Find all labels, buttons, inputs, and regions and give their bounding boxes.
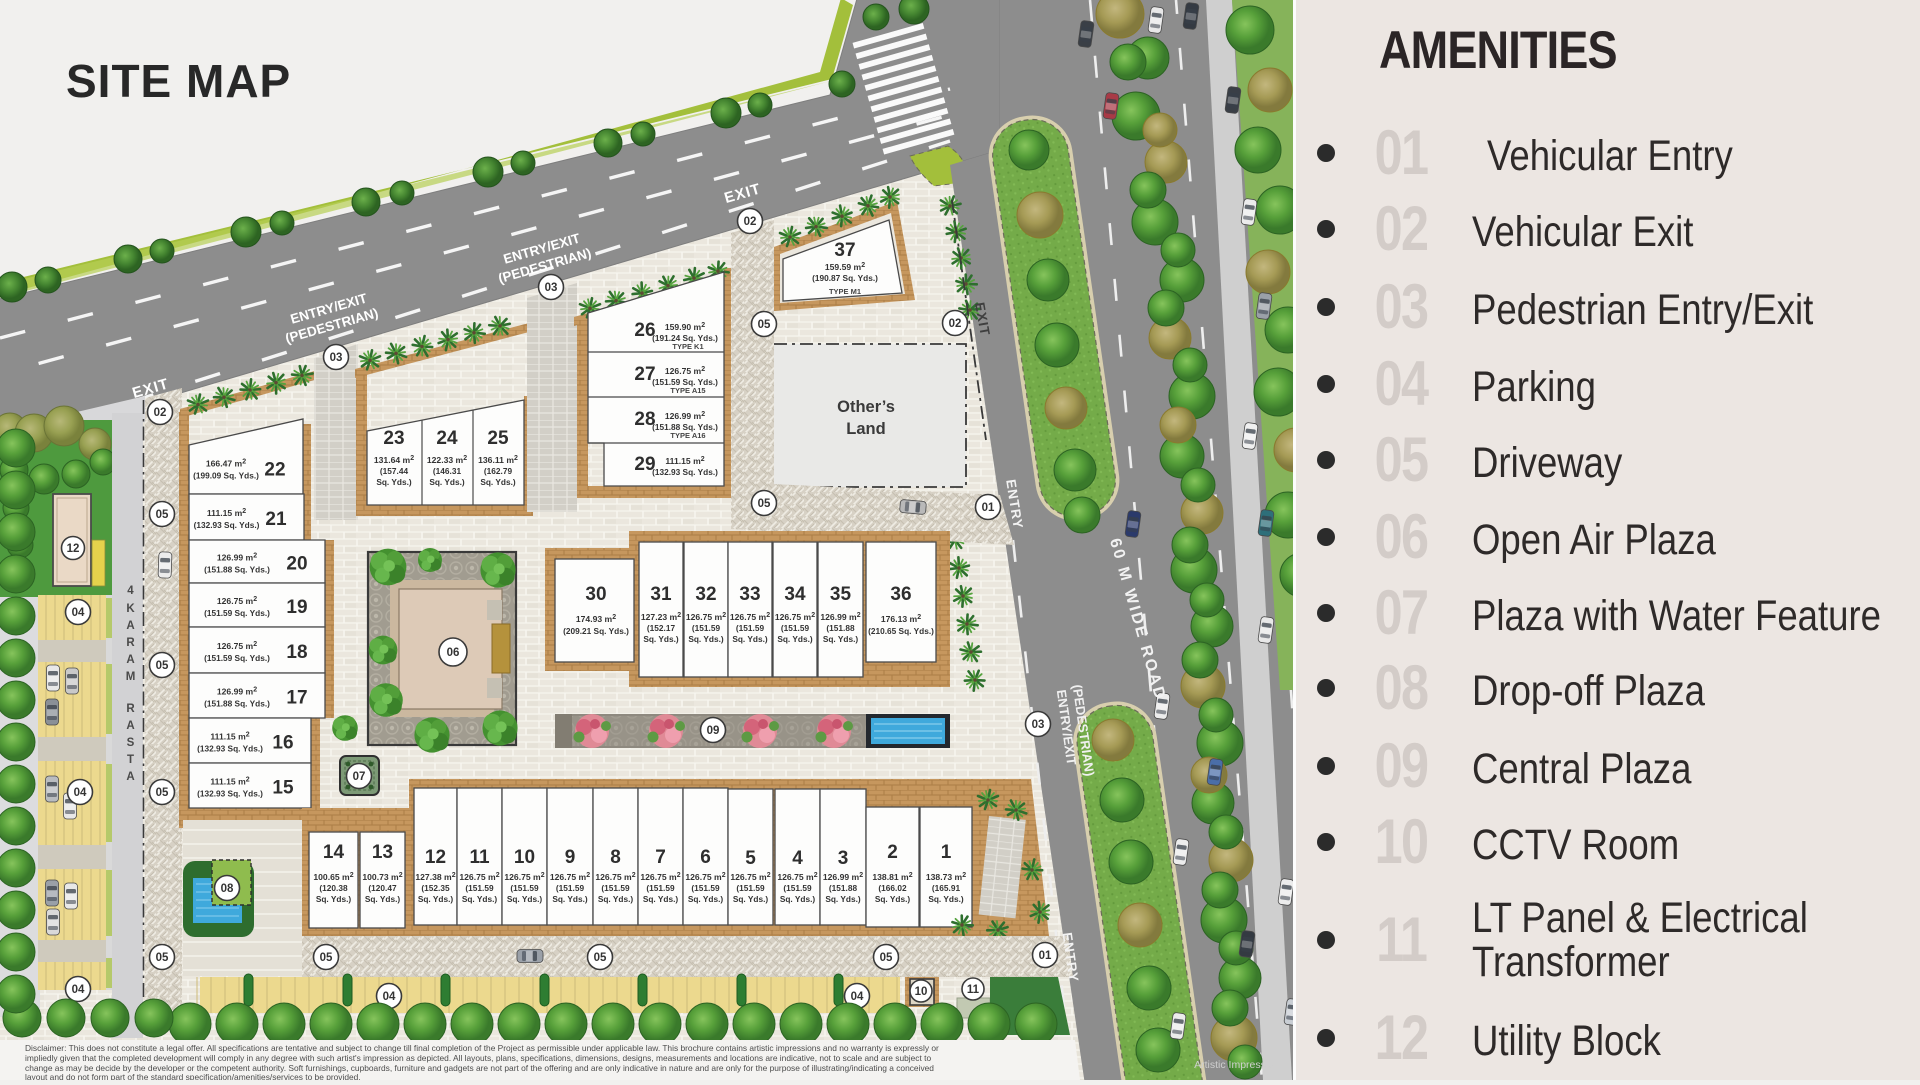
svg-text:Other’s: Other’s bbox=[837, 398, 895, 416]
svg-text:TYPE A15: TYPE A15 bbox=[670, 386, 705, 395]
svg-text:Sq. Yds.): Sq. Yds.) bbox=[732, 634, 768, 644]
svg-text:25: 25 bbox=[487, 428, 509, 449]
svg-text:(132.93 Sq. Yds.): (132.93 Sq. Yds.) bbox=[197, 789, 263, 799]
svg-text:A: A bbox=[126, 771, 134, 783]
svg-text:22: 22 bbox=[264, 460, 285, 481]
svg-text:(151.88: (151.88 bbox=[826, 623, 855, 633]
svg-text:(132.93 Sq. Yds.): (132.93 Sq. Yds.) bbox=[194, 520, 260, 530]
svg-text:05: 05 bbox=[156, 952, 169, 964]
svg-text:111.15 m2: 111.15 m2 bbox=[210, 776, 249, 787]
svg-text:(151.59: (151.59 bbox=[736, 883, 765, 893]
svg-text:(151.59: (151.59 bbox=[646, 883, 675, 893]
svg-text:04: 04 bbox=[74, 787, 87, 799]
svg-text:30: 30 bbox=[585, 584, 606, 605]
svg-text:S: S bbox=[127, 737, 135, 749]
svg-text:05: 05 bbox=[156, 660, 169, 672]
svg-text:TYPE K1: TYPE K1 bbox=[672, 342, 703, 351]
svg-text:Artistic Impression: Artistic Impression bbox=[1194, 1059, 1280, 1071]
svg-text:Sq. Yds.): Sq. Yds.) bbox=[688, 894, 724, 904]
svg-text:111.15 m2: 111.15 m2 bbox=[665, 456, 704, 467]
svg-text:Sq. Yds.): Sq. Yds.) bbox=[643, 894, 679, 904]
svg-text:Sq. Yds.): Sq. Yds.) bbox=[418, 894, 454, 904]
svg-text:(151.59: (151.59 bbox=[601, 883, 630, 893]
svg-text:(162.79: (162.79 bbox=[484, 466, 513, 476]
svg-text:138.81 m2: 138.81 m2 bbox=[872, 872, 912, 883]
svg-text:32: 32 bbox=[695, 584, 716, 605]
svg-text:(152.35: (152.35 bbox=[421, 883, 450, 893]
svg-text:20: 20 bbox=[286, 554, 307, 575]
svg-text:37: 37 bbox=[834, 240, 855, 261]
svg-text:6: 6 bbox=[700, 847, 711, 868]
svg-text:05: 05 bbox=[880, 952, 893, 964]
svg-text:138.73 m2: 138.73 m2 bbox=[926, 872, 966, 883]
svg-text:Sq. Yds.): Sq. Yds.) bbox=[643, 634, 679, 644]
svg-text:05: 05 bbox=[320, 952, 333, 964]
svg-text:13: 13 bbox=[372, 842, 393, 863]
svg-text:A: A bbox=[126, 720, 134, 732]
svg-text:(190.87 Sq. Yds.): (190.87 Sq. Yds.) bbox=[812, 273, 878, 283]
svg-text:126.75 m2: 126.75 m2 bbox=[665, 366, 705, 377]
svg-text:(151.59: (151.59 bbox=[691, 883, 720, 893]
svg-text:M: M bbox=[126, 671, 136, 683]
svg-text:(132.93 Sq. Yds.): (132.93 Sq. Yds.) bbox=[652, 467, 718, 477]
svg-text:A: A bbox=[126, 654, 134, 666]
svg-text:31: 31 bbox=[650, 584, 672, 605]
svg-text:layout and do not form part of: layout and do not form part of the stand… bbox=[25, 1072, 361, 1080]
svg-text:02: 02 bbox=[154, 407, 167, 419]
svg-text:Sq. Yds.): Sq. Yds.) bbox=[507, 894, 543, 904]
svg-text:(151.59 Sq. Yds.): (151.59 Sq. Yds.) bbox=[204, 653, 270, 663]
svg-text:12: 12 bbox=[67, 543, 80, 555]
svg-text:126.99 m2: 126.99 m2 bbox=[820, 612, 860, 623]
svg-text:TYPE M1: TYPE M1 bbox=[829, 287, 861, 296]
svg-text:Land: Land bbox=[846, 420, 885, 438]
svg-text:(166.02: (166.02 bbox=[878, 883, 907, 893]
svg-text:33: 33 bbox=[739, 584, 760, 605]
svg-text:126.99 m2: 126.99 m2 bbox=[217, 686, 257, 697]
svg-text:03: 03 bbox=[545, 282, 558, 294]
svg-text:126.75 m2: 126.75 m2 bbox=[595, 872, 635, 883]
svg-text:21: 21 bbox=[265, 509, 287, 530]
svg-text:(151.59: (151.59 bbox=[692, 623, 721, 633]
svg-text:03: 03 bbox=[330, 352, 343, 364]
svg-text:159.90 m2: 159.90 m2 bbox=[665, 322, 705, 333]
svg-text:12: 12 bbox=[425, 847, 446, 868]
svg-text:111.15 m2: 111.15 m2 bbox=[210, 731, 249, 742]
svg-text:16: 16 bbox=[272, 733, 293, 754]
svg-text:(151.59: (151.59 bbox=[510, 883, 539, 893]
svg-text:126.75 m2: 126.75 m2 bbox=[459, 872, 499, 883]
svg-text:126.99 m2: 126.99 m2 bbox=[665, 411, 705, 422]
svg-text:14: 14 bbox=[323, 842, 345, 863]
svg-text:Sq. Yds.): Sq. Yds.) bbox=[777, 634, 813, 644]
svg-text:126.75 m2: 126.75 m2 bbox=[686, 612, 726, 623]
svg-text:02: 02 bbox=[744, 216, 757, 228]
svg-text:(210.65 Sq. Yds.): (210.65 Sq. Yds.) bbox=[868, 626, 934, 636]
svg-text:8: 8 bbox=[610, 847, 621, 868]
svg-text:126.75 m2: 126.75 m2 bbox=[730, 872, 770, 883]
svg-text:Sq. Yds.): Sq. Yds.) bbox=[823, 634, 859, 644]
svg-text:04: 04 bbox=[72, 607, 85, 619]
svg-text:34: 34 bbox=[784, 584, 806, 605]
svg-text:K: K bbox=[126, 603, 135, 615]
svg-text:TYPE A16: TYPE A16 bbox=[670, 431, 705, 440]
svg-text:(120.47: (120.47 bbox=[368, 883, 397, 893]
svg-text:4: 4 bbox=[792, 848, 803, 869]
svg-text:174.93 m2: 174.93 m2 bbox=[576, 614, 616, 625]
svg-text:126.75 m2: 126.75 m2 bbox=[217, 596, 257, 607]
svg-text:(151.59: (151.59 bbox=[736, 623, 765, 633]
svg-text:(152.17: (152.17 bbox=[647, 623, 676, 633]
svg-text:01: 01 bbox=[1039, 950, 1052, 962]
svg-text:R: R bbox=[126, 637, 135, 649]
svg-text:4: 4 bbox=[127, 585, 134, 597]
svg-text:17: 17 bbox=[286, 688, 307, 709]
svg-text:126.99 m2: 126.99 m2 bbox=[217, 552, 257, 563]
svg-text:11: 11 bbox=[967, 984, 980, 996]
svg-text:Sq. Yds.): Sq. Yds.) bbox=[733, 894, 769, 904]
svg-text:(151.59 Sq. Yds.): (151.59 Sq. Yds.) bbox=[204, 608, 270, 618]
svg-text:126.75 m2: 126.75 m2 bbox=[775, 612, 815, 623]
svg-text:Sq. Yds.): Sq. Yds.) bbox=[780, 894, 816, 904]
svg-text:07: 07 bbox=[353, 771, 366, 783]
svg-text:2: 2 bbox=[887, 842, 898, 863]
svg-text:03: 03 bbox=[1032, 719, 1045, 731]
svg-text:A: A bbox=[126, 620, 134, 632]
svg-text:(151.88: (151.88 bbox=[829, 883, 858, 893]
svg-text:36: 36 bbox=[890, 584, 911, 605]
svg-text:Sq. Yds.): Sq. Yds.) bbox=[598, 894, 634, 904]
svg-text:Sq. Yds.): Sq. Yds.) bbox=[552, 894, 588, 904]
svg-text:Sq. Yds.): Sq. Yds.) bbox=[462, 894, 498, 904]
svg-text:04: 04 bbox=[851, 991, 864, 1003]
svg-text:122.33 m2: 122.33 m2 bbox=[427, 455, 467, 466]
svg-text:05: 05 bbox=[156, 509, 169, 521]
svg-text:04: 04 bbox=[72, 984, 85, 996]
svg-text:09: 09 bbox=[707, 725, 720, 737]
svg-text:(146.31: (146.31 bbox=[433, 466, 462, 476]
svg-text:04: 04 bbox=[383, 991, 396, 1003]
svg-text:1: 1 bbox=[941, 842, 952, 863]
svg-text:126.75 m2: 126.75 m2 bbox=[685, 872, 725, 883]
svg-text:3: 3 bbox=[838, 848, 849, 869]
svg-text:Sq. Yds.): Sq. Yds.) bbox=[875, 894, 911, 904]
svg-text:111.15 m2: 111.15 m2 bbox=[207, 508, 246, 519]
svg-text:10: 10 bbox=[514, 847, 535, 868]
svg-text:100.73 m2: 100.73 m2 bbox=[362, 872, 402, 883]
svg-text:02: 02 bbox=[949, 318, 962, 330]
svg-text:SITE MAP: SITE MAP bbox=[66, 55, 291, 107]
svg-text:(151.59: (151.59 bbox=[556, 883, 585, 893]
svg-text:(151.59: (151.59 bbox=[781, 623, 810, 633]
svg-text:(151.59: (151.59 bbox=[465, 883, 494, 893]
svg-text:(120.38: (120.38 bbox=[319, 883, 348, 893]
svg-text:T: T bbox=[127, 754, 134, 766]
svg-text:159.59 m2: 159.59 m2 bbox=[825, 262, 865, 273]
svg-text:15: 15 bbox=[272, 778, 294, 799]
svg-text:(151.59: (151.59 bbox=[783, 883, 812, 893]
svg-text:131.64 m2: 131.64 m2 bbox=[374, 455, 414, 466]
svg-text:127.23 m2: 127.23 m2 bbox=[641, 612, 681, 623]
svg-text:05: 05 bbox=[758, 319, 771, 331]
svg-text:impliedly given that the comp: impliedly given that the completed devel… bbox=[25, 1053, 931, 1063]
svg-text:(132.93 Sq. Yds.): (132.93 Sq. Yds.) bbox=[197, 744, 263, 754]
svg-text:08: 08 bbox=[221, 883, 234, 895]
svg-text:Sq. Yds.): Sq. Yds.) bbox=[429, 477, 465, 487]
svg-text:11: 11 bbox=[469, 847, 490, 868]
svg-text:126.75 m2: 126.75 m2 bbox=[550, 872, 590, 883]
svg-text:(157.44: (157.44 bbox=[380, 466, 409, 476]
svg-text:05: 05 bbox=[758, 498, 771, 510]
svg-text:Sq. Yds.): Sq. Yds.) bbox=[825, 894, 861, 904]
svg-text:05: 05 bbox=[594, 952, 607, 964]
svg-text:126.99 m2: 126.99 m2 bbox=[823, 872, 863, 883]
svg-text:Sq. Yds.): Sq. Yds.) bbox=[365, 894, 401, 904]
svg-text:01: 01 bbox=[982, 502, 995, 514]
svg-text:7: 7 bbox=[655, 847, 666, 868]
svg-text:126.75 m2: 126.75 m2 bbox=[217, 641, 257, 652]
svg-text:Sq. Yds.): Sq. Yds.) bbox=[688, 634, 724, 644]
svg-text:(165.91: (165.91 bbox=[932, 883, 961, 893]
svg-text:100.65 m2: 100.65 m2 bbox=[313, 872, 353, 883]
svg-text:126.75 m2: 126.75 m2 bbox=[730, 612, 770, 623]
svg-text:R: R bbox=[126, 703, 135, 715]
svg-text:10: 10 bbox=[915, 986, 928, 998]
svg-text:127.38 m2: 127.38 m2 bbox=[415, 872, 455, 883]
svg-text:166.47 m2: 166.47 m2 bbox=[206, 458, 246, 469]
svg-text:05: 05 bbox=[156, 787, 169, 799]
svg-text:24: 24 bbox=[436, 428, 458, 449]
svg-text:23: 23 bbox=[383, 428, 404, 449]
svg-text:19: 19 bbox=[286, 597, 307, 618]
svg-text:06: 06 bbox=[447, 647, 460, 659]
svg-text:Sq. Yds.): Sq. Yds.) bbox=[376, 477, 412, 487]
svg-text:Sq. Yds.): Sq. Yds.) bbox=[928, 894, 964, 904]
svg-text:(151.88 Sq. Yds.): (151.88 Sq. Yds.) bbox=[204, 565, 270, 575]
svg-text:35: 35 bbox=[830, 584, 852, 605]
svg-text:126.75 m2: 126.75 m2 bbox=[640, 872, 680, 883]
svg-text:18: 18 bbox=[286, 642, 307, 663]
svg-text:126.75 m2: 126.75 m2 bbox=[504, 872, 544, 883]
svg-text:(151.88 Sq. Yds.): (151.88 Sq. Yds.) bbox=[204, 699, 270, 709]
svg-text:5: 5 bbox=[745, 848, 756, 869]
svg-text:Disclaimer: This does not cons: Disclaimer: This does not constitute a l… bbox=[25, 1043, 939, 1053]
svg-text:176.13 m2: 176.13 m2 bbox=[881, 614, 921, 625]
svg-text:(199.09 Sq. Yds.): (199.09 Sq. Yds.) bbox=[193, 471, 259, 481]
svg-text:Sq. Yds.): Sq. Yds.) bbox=[316, 894, 352, 904]
svg-text:(209.21 Sq. Yds.): (209.21 Sq. Yds.) bbox=[563, 626, 629, 636]
svg-text:9: 9 bbox=[565, 847, 576, 868]
svg-text:Sq. Yds.): Sq. Yds.) bbox=[480, 477, 516, 487]
svg-text:136.11 m2: 136.11 m2 bbox=[478, 455, 518, 466]
svg-text:126.75 m2: 126.75 m2 bbox=[777, 872, 817, 883]
